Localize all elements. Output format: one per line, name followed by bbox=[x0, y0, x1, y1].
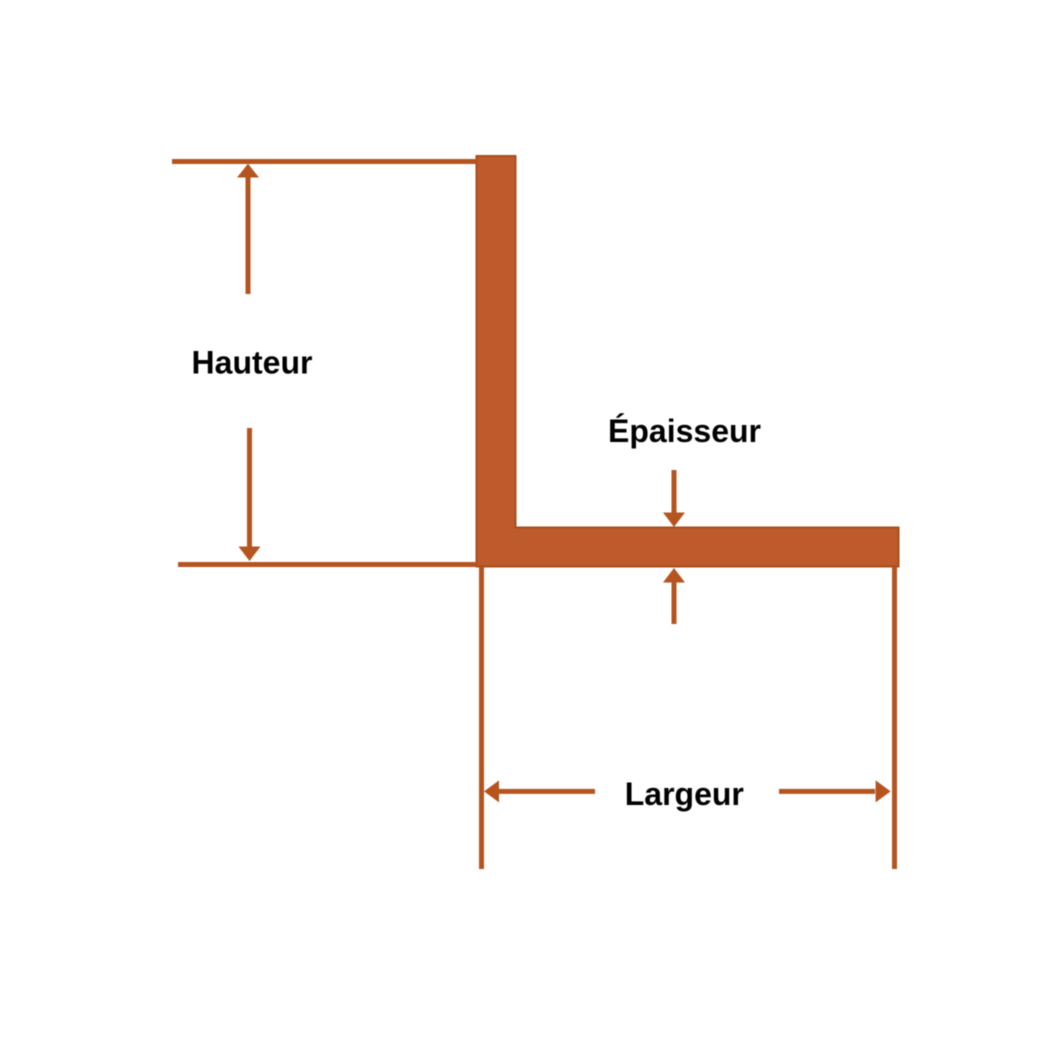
svg-text:Épaisseur: Épaisseur bbox=[608, 413, 761, 449]
svg-text:Largeur: Largeur bbox=[625, 776, 744, 812]
svg-text:Hauteur: Hauteur bbox=[192, 345, 313, 381]
